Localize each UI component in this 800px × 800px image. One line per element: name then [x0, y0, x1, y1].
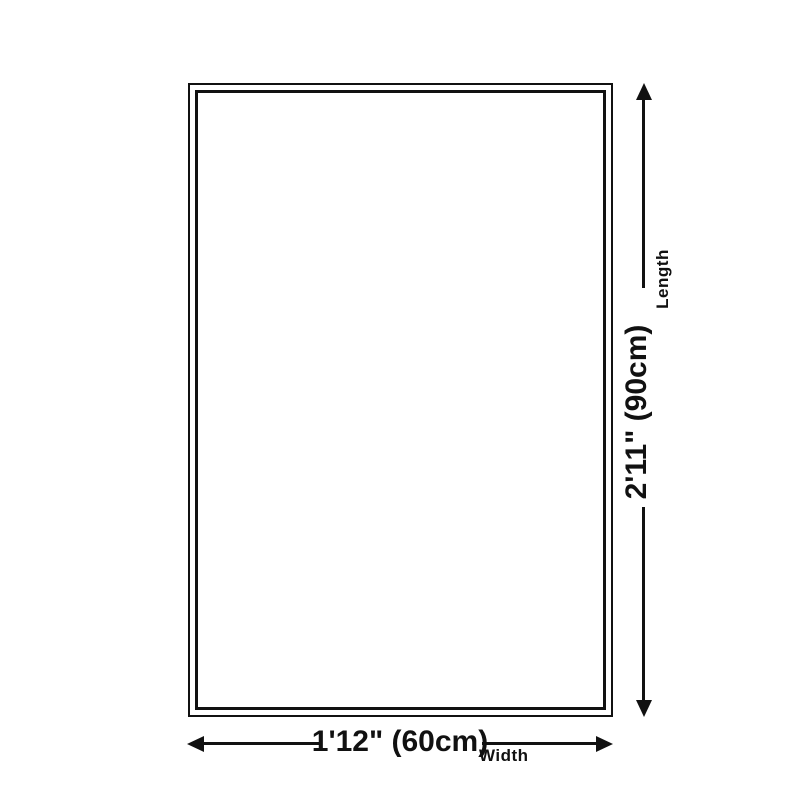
- width-dimension-line-right: [482, 742, 600, 745]
- arrow-right-icon: [596, 736, 613, 752]
- width-value: 1'12" (60cm): [300, 722, 500, 762]
- length-value: 2'11" (90cm): [617, 302, 657, 522]
- product-outline-inner: [195, 90, 606, 710]
- dimension-diagram: Length 2'11" (90cm) 1'12" (60cm) Width: [0, 0, 800, 800]
- width-label: Width: [479, 746, 529, 766]
- length-dimension-line-lower: [642, 507, 645, 703]
- length-dimension-line-upper: [642, 98, 645, 288]
- arrow-down-icon: [636, 700, 652, 717]
- product-outline-outer: [188, 83, 613, 717]
